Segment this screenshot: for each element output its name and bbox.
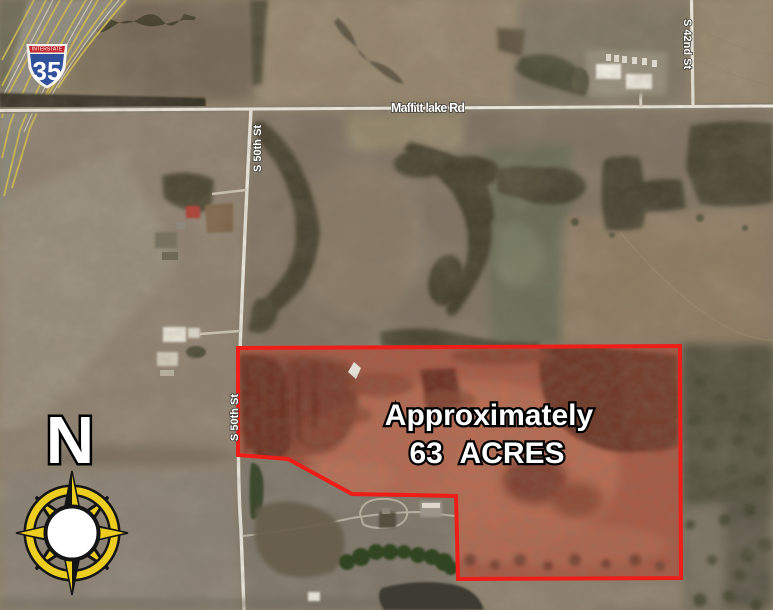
svg-text:S 50th St: S 50th St xyxy=(229,394,241,441)
svg-text:Approximately: Approximately xyxy=(385,399,594,432)
svg-text:S 42nd St: S 42nd St xyxy=(681,19,693,69)
svg-text:Maffitt lake Rd: Maffitt lake Rd xyxy=(391,101,465,115)
svg-text:INTERSTATE: INTERSTATE xyxy=(32,47,63,53)
svg-text:S 50th St: S 50th St xyxy=(252,125,264,172)
svg-text:35: 35 xyxy=(33,56,62,86)
svg-text:N: N xyxy=(46,403,94,478)
svg-text:63 ACRES: 63 ACRES xyxy=(409,437,564,470)
